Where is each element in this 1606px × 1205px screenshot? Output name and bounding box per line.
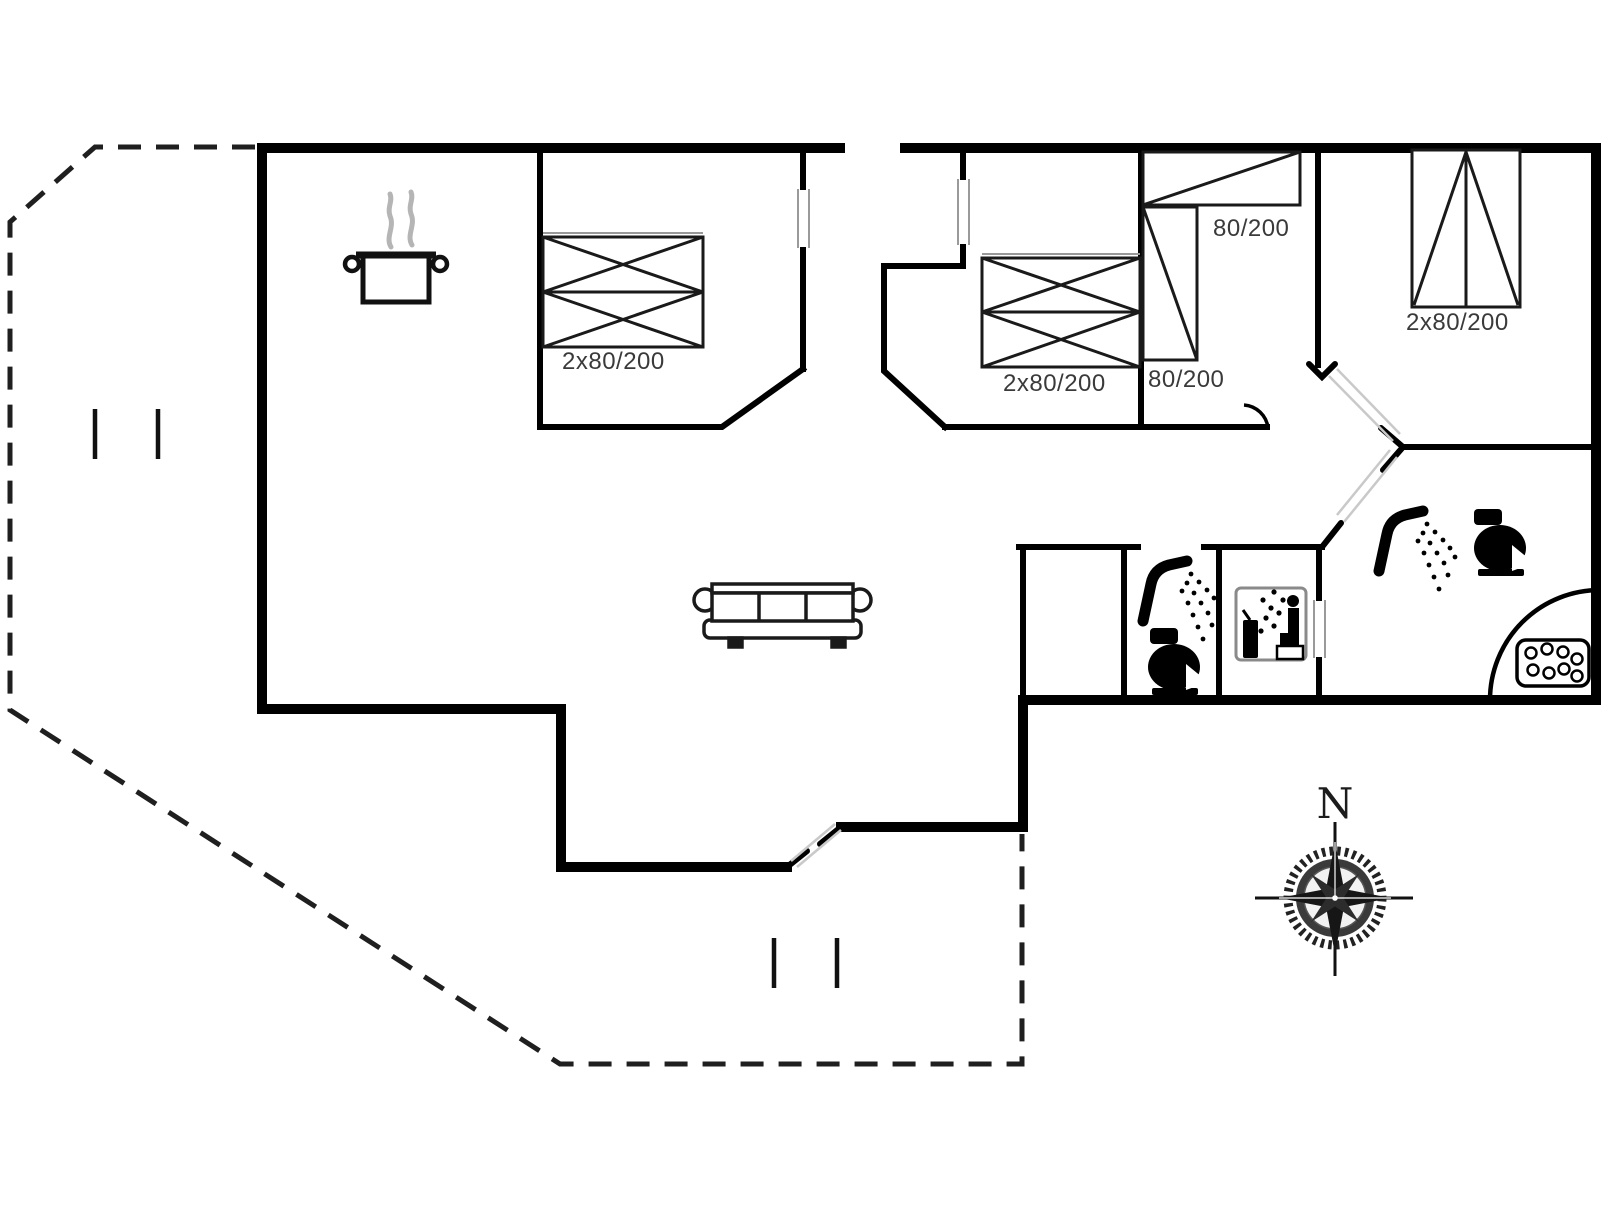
door-frames xyxy=(798,179,1325,658)
bedroom1-bed xyxy=(543,233,703,347)
door-leaves xyxy=(791,369,1400,867)
bedroom3-bed-top xyxy=(1143,152,1300,205)
bed-size-label-bedroom1: 2x80/200 xyxy=(562,348,665,375)
compass-north-label: N xyxy=(1317,779,1354,828)
sofa-icon xyxy=(694,584,871,647)
floor-plan-svg: 2x80/200 2x80/200 80/200 80/200 2x80/200 xyxy=(0,0,1606,1205)
bed-size-label-bedroom4: 2x80/200 xyxy=(1406,309,1509,336)
floor-plan: 2x80/200 2x80/200 80/200 80/200 2x80/200 xyxy=(0,0,1606,1205)
bed-size-label-bedroom3-side: 80/200 xyxy=(1148,366,1224,393)
bedroom2-bed xyxy=(982,254,1140,367)
toilet-icon xyxy=(1474,509,1534,576)
bed-size-label-bedroom2: 2x80/200 xyxy=(1003,370,1106,397)
sauna-icon xyxy=(1236,588,1306,660)
compass-rose-icon xyxy=(1255,822,1413,976)
exterior-walls xyxy=(262,148,1596,867)
bedroom4-bed xyxy=(1412,150,1520,307)
shower-icon xyxy=(1379,511,1457,591)
cooking-pot-icon xyxy=(345,192,447,302)
door-jambs xyxy=(787,364,1403,867)
toilet-icon xyxy=(1148,628,1208,695)
bedroom3-bed-side xyxy=(1143,207,1197,360)
terrace-tick-marks xyxy=(95,409,837,988)
bed-size-label-bedroom3-top: 80/200 xyxy=(1213,215,1289,242)
whirlpool-tub-icon xyxy=(1490,590,1600,700)
